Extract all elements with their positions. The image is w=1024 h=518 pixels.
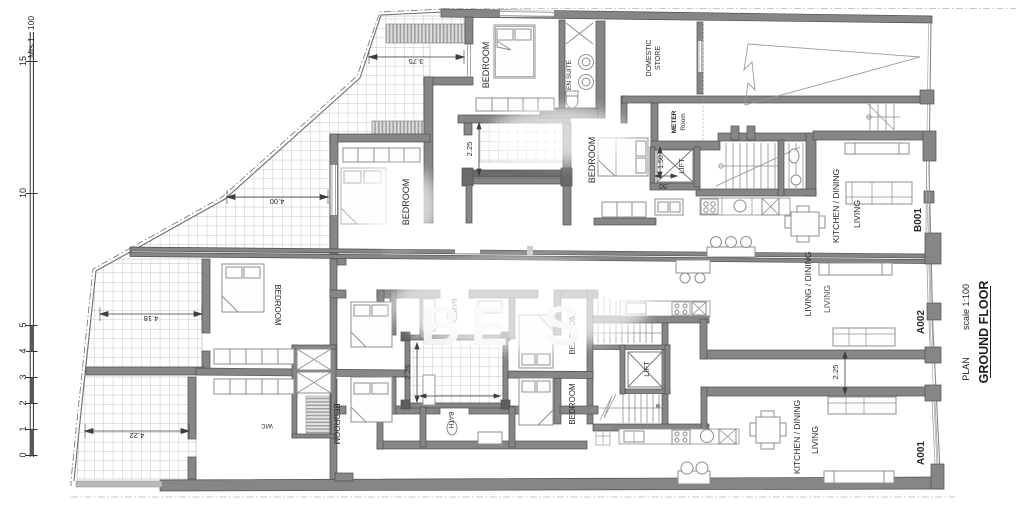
svg-text:4.00: 4.00 [270, 197, 285, 206]
svg-text:METER: METER [671, 110, 678, 133]
svg-text:2.25: 2.25 [403, 365, 412, 380]
svg-text:5: 5 [18, 322, 28, 327]
svg-text:4.18: 4.18 [144, 314, 159, 323]
svg-text:LIVING: LIVING [810, 426, 820, 454]
svg-text:scale 1:100: scale 1:100 [961, 284, 971, 330]
svg-text:3: 3 [18, 374, 28, 379]
svg-text:1.50: 1.50 [658, 155, 665, 169]
svg-text:LIFT: LIFT [677, 158, 686, 174]
svg-text:A002: A002 [916, 310, 927, 334]
svg-text:1: 1 [18, 426, 28, 431]
svg-text:Mts 1 : 100: Mts 1 : 100 [26, 16, 36, 58]
svg-text:4: 4 [18, 348, 28, 353]
svg-text:GROUND FLOOR: GROUND FLOOR [977, 281, 991, 384]
svg-text:Room: Room [680, 113, 687, 130]
svg-text:BEDROOM: BEDROOM [568, 383, 577, 425]
svg-text:EN SUITE: EN SUITE [566, 59, 573, 90]
svg-text:3.75: 3.75 [409, 57, 424, 66]
svg-text:LIVING / DINING: LIVING / DINING [803, 252, 813, 317]
svg-text:A001: A001 [916, 441, 927, 465]
svg-text:BEDROOM: BEDROOM [587, 137, 597, 184]
svg-text:WIC: WIC [261, 422, 273, 428]
svg-text:LIVING: LIVING [852, 200, 862, 228]
svg-text:2: 2 [18, 400, 28, 405]
svg-text:KITCHEN / DINING: KITCHEN / DINING [831, 169, 841, 243]
svg-text:B001: B001 [913, 208, 924, 232]
svg-text:2.25: 2.25 [831, 365, 840, 380]
svg-text:BEDROOM: BEDROOM [481, 42, 491, 89]
svg-text:4.22: 4.22 [130, 431, 145, 440]
svg-text:BEDROOM: BEDROOM [401, 179, 411, 226]
svg-text:PLAN: PLAN [961, 357, 971, 381]
svg-text:0: 0 [18, 452, 28, 457]
svg-text:LIVING: LIVING [822, 285, 832, 313]
svg-text:BEDROOM: BEDROOM [332, 403, 341, 445]
svg-text:.50: .50 [659, 182, 669, 189]
svg-text:BATH: BATH [447, 412, 454, 429]
svg-text:DOMESTIC: DOMESTIC [646, 40, 653, 77]
svg-text:STORE: STORE [655, 46, 662, 70]
svg-text:BEDROOM: BEDROOM [273, 284, 282, 326]
svg-text:10: 10 [18, 188, 28, 198]
svg-text:2.25: 2.25 [465, 142, 474, 157]
svg-text:LIFT: LIFT [642, 361, 651, 377]
svg-text:KITCHEN / DINING: KITCHEN / DINING [792, 400, 802, 474]
